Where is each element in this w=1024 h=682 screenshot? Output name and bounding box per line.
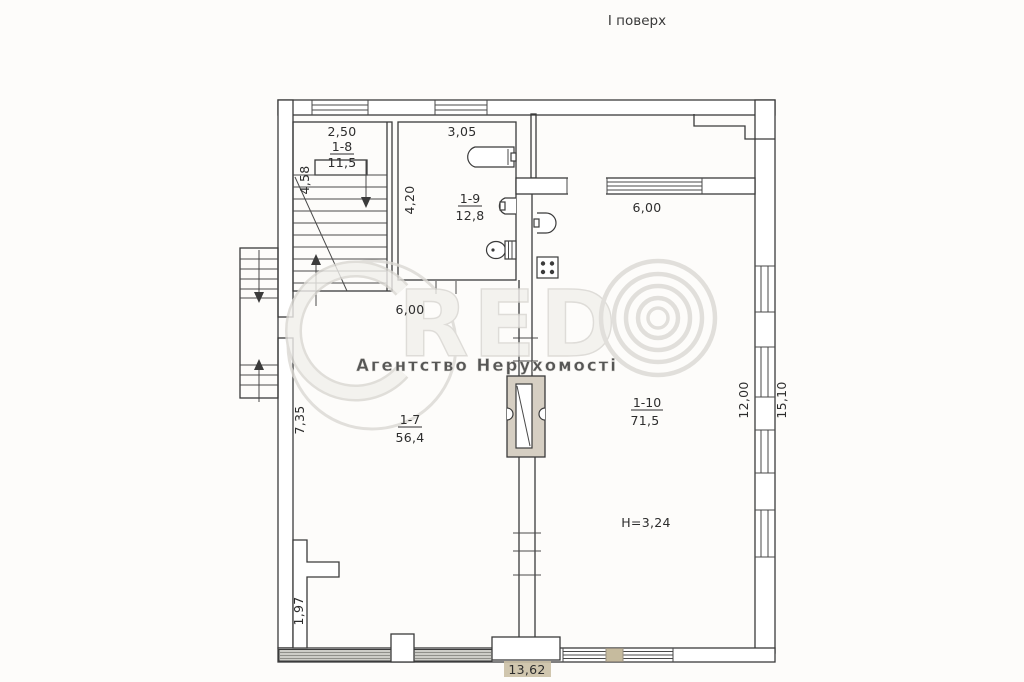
bathtub-icon [468, 147, 516, 167]
room-1-9-width-label: 3,05 [447, 124, 476, 139]
floor-plan-page: RED Агентство Нерухомості І поверх 2,50 … [0, 0, 1024, 682]
room-1-8-depth-label: 4,58 [297, 165, 312, 194]
room-1-7-area-label: 56,4 [395, 430, 424, 445]
room-1-8-area-label: 11,5 [327, 155, 356, 170]
right-outer-dim-label: 15,10 [774, 381, 789, 418]
room-1-8-width-label: 2,50 [327, 124, 356, 139]
right-inner-dim-label: 12,00 [736, 381, 751, 418]
toilet-icon [487, 241, 517, 259]
left-lower-dim-label: 1,97 [291, 596, 306, 625]
column-pier [391, 634, 414, 662]
window-pier-beige [606, 649, 623, 662]
watermark-subtitle: Агентство Нерухомості [356, 356, 618, 375]
kitchen-sink-icon [534, 213, 556, 233]
room-1-7-width-label: 6,00 [395, 302, 424, 317]
room-1-10-width-label: 6,00 [632, 200, 661, 215]
floor-plan-svg: RED Агентство Нерухомості І поверх 2,50 … [0, 0, 1024, 682]
room-1-8-id-label: 1-8 [332, 139, 352, 154]
room-1-10-id-label: 1-10 [633, 395, 661, 410]
room-1-10-area-label: 71,5 [630, 413, 659, 428]
washbasin-icon [499, 198, 516, 214]
left-side-dim-label: 7,35 [292, 405, 307, 434]
ceiling-height-label: H=3,24 [621, 515, 671, 530]
room-1-7-id-label: 1-7 [400, 412, 420, 427]
bottom-window-icon [563, 648, 673, 662]
partition-footing [492, 637, 560, 660]
bottom-dim-label: 13,62 [508, 662, 545, 677]
room-1-9-id-label: 1-9 [460, 191, 480, 206]
room-1-9-depth-label: 4,20 [402, 185, 417, 214]
flue-chimney-block [507, 376, 545, 457]
room-1-9-area-label: 12,8 [455, 208, 484, 223]
page-title: І поверх [608, 13, 666, 29]
corridor-door-opening [567, 177, 607, 195]
